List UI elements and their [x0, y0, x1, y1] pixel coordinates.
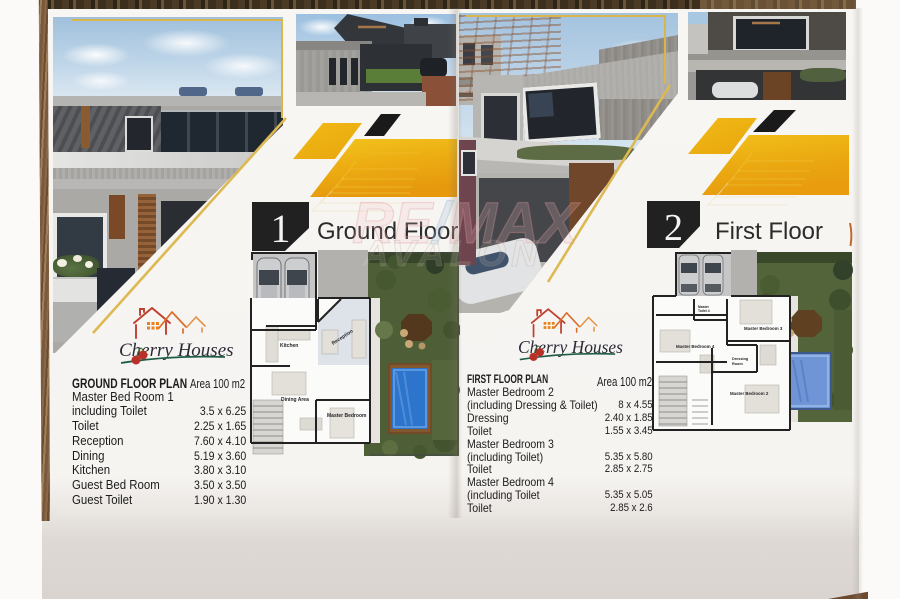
svg-text:Master Bedroom 2: Master Bedroom 2 [730, 391, 769, 396]
svg-text:Room: Room [732, 362, 743, 366]
svg-text:Master Bedroom 4: Master Bedroom 4 [676, 344, 715, 349]
svg-text:Dressing: Dressing [732, 357, 749, 361]
svg-text:Master Bedroom 3: Master Bedroom 3 [744, 326, 783, 331]
svg-text:Toilet 4: Toilet 4 [698, 309, 710, 313]
